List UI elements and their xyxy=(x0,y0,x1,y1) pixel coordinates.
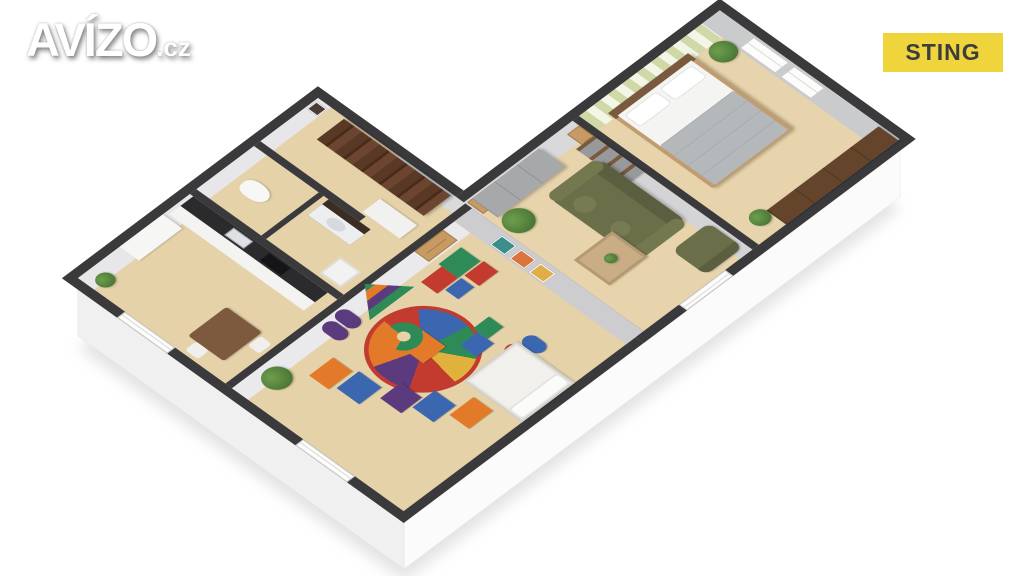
floorplan-image: { "overlay": { "logo": { "main": "AVÍZO"… xyxy=(0,0,1024,576)
avizo-logo[interactable]: AVÍZO.cz xyxy=(26,12,191,67)
badge-label: STING xyxy=(905,39,980,66)
logo-suffix-text: .cz xyxy=(156,32,191,62)
logo-main-text: AVÍZO xyxy=(26,13,156,66)
sting-agency-badge[interactable]: STING xyxy=(883,33,1003,72)
